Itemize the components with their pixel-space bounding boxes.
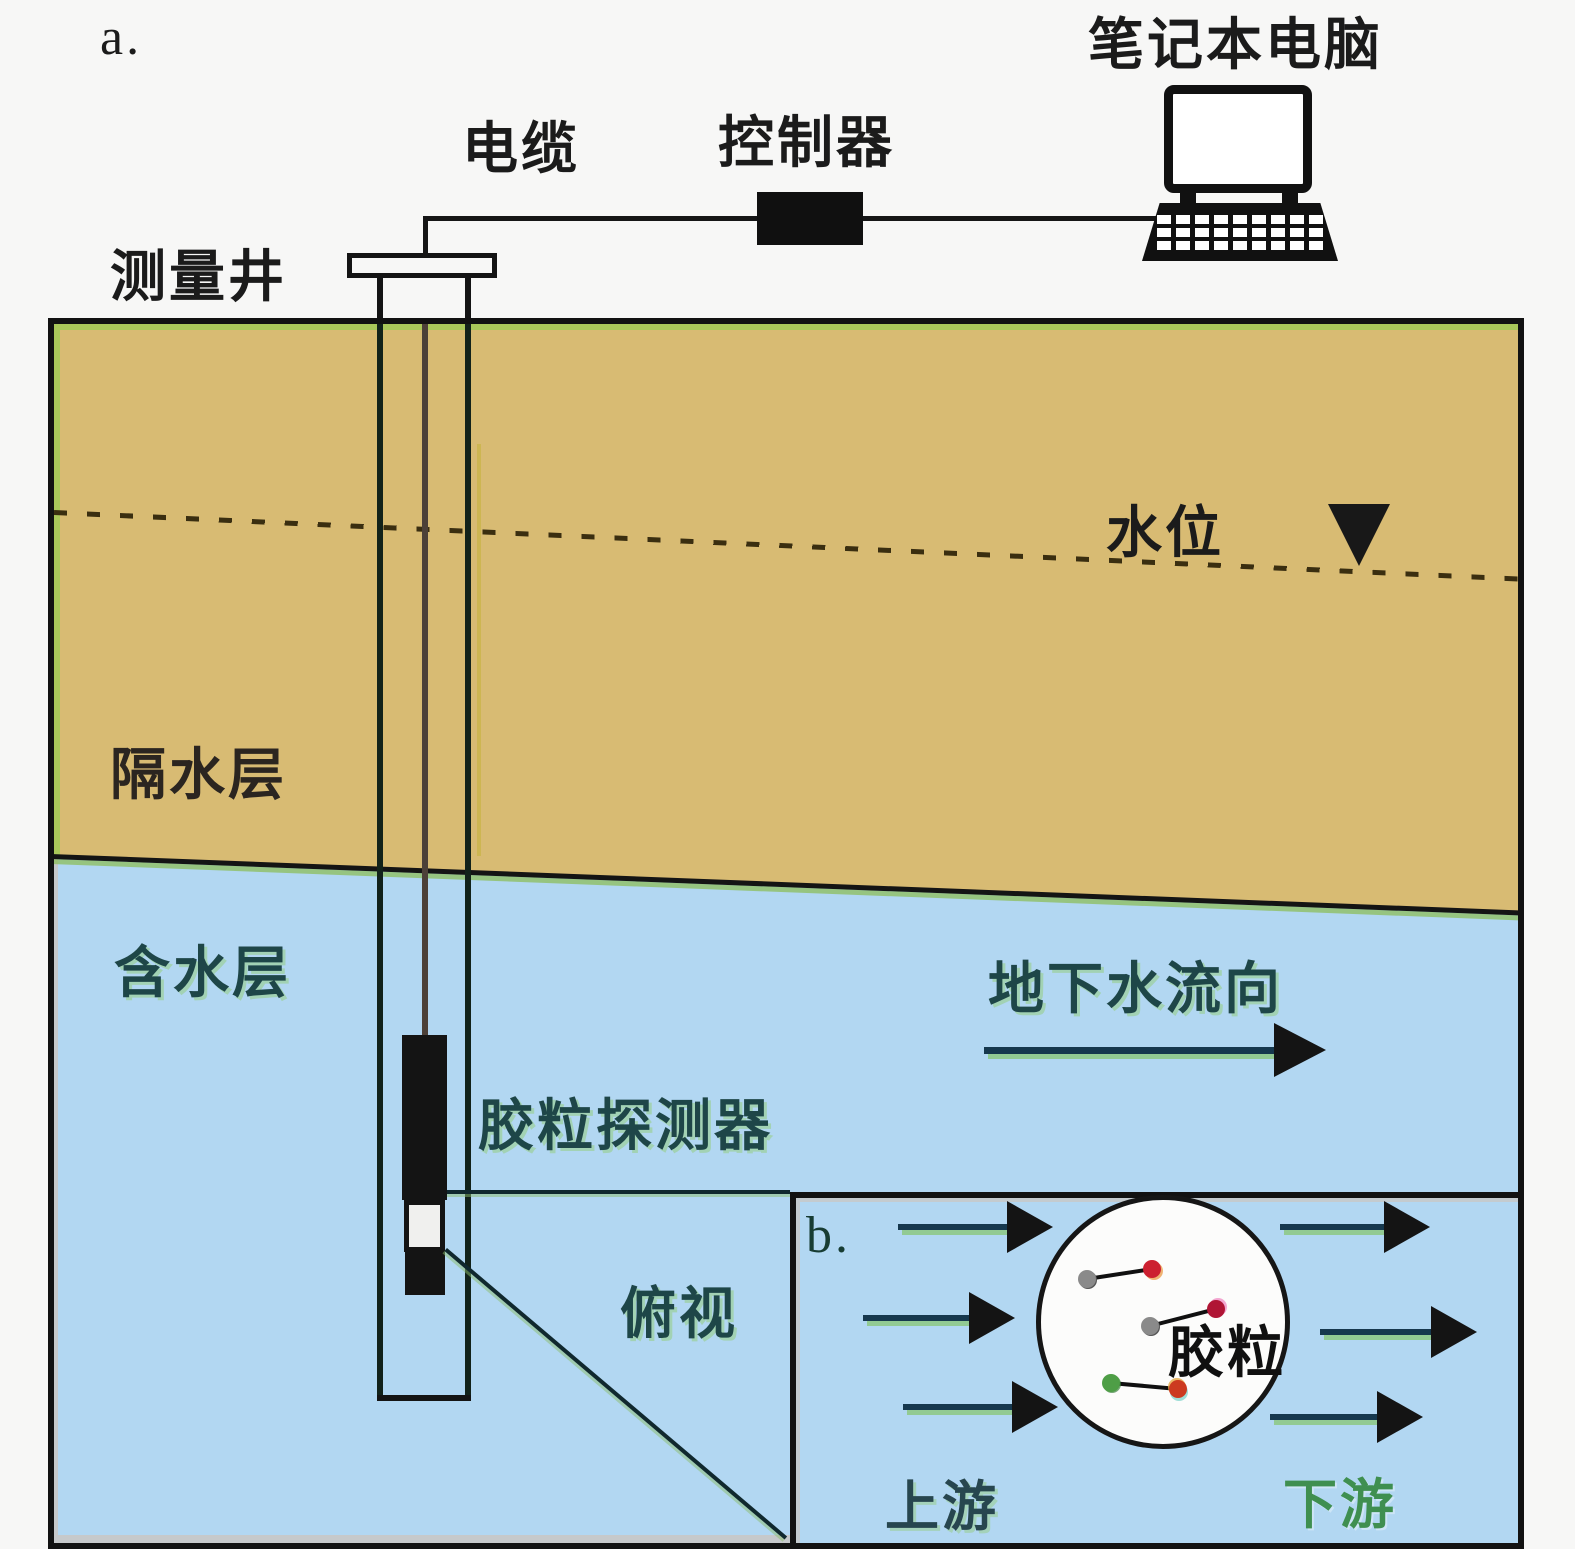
groundwater-flow-label: 地下水流向 — [988, 944, 1283, 1025]
aquifer-label: 含水层 — [114, 928, 291, 1009]
top-view-label: 俯视 — [620, 1269, 738, 1350]
colloid-detector-tip — [405, 1250, 445, 1295]
colloid-detector-body — [402, 1035, 447, 1200]
right-arrow-icon — [1270, 1391, 1423, 1443]
colloid-detector-label: 胶粒探测器 — [478, 1081, 773, 1162]
laptop-keyboard — [1142, 203, 1338, 261]
figure-canvas: a. 测量井 电缆 控制器 笔记本电脑 水位 — [0, 0, 1575, 1549]
colloid-detector-window — [404, 1200, 445, 1252]
controller-label: 控制器 — [718, 98, 895, 179]
cross-section-box: 水位 隔水层 含水层 地下水流向 胶粒探测器 — [48, 318, 1524, 1549]
well-label: 测量井 — [110, 232, 287, 313]
well-casing — [377, 276, 383, 321]
right-arrow-icon — [863, 1292, 1015, 1344]
cable-label: 电缆 — [462, 104, 580, 185]
colloid-particle-start — [1141, 1317, 1159, 1335]
right-arrow-icon — [984, 1024, 1326, 1076]
well-bottom — [377, 1395, 471, 1401]
right-arrow-icon — [1320, 1306, 1477, 1358]
upstream-label: 上游 — [885, 1462, 999, 1541]
green-edge — [54, 324, 1518, 330]
well-casing — [465, 276, 471, 321]
colloid-label: 胶粒 — [1168, 1308, 1286, 1389]
colloid-particle-start — [1078, 1270, 1096, 1288]
well-cap — [347, 253, 497, 278]
panel-b-label: b. — [806, 1206, 851, 1265]
colloid-particle-end — [1143, 1260, 1161, 1278]
laptop-hinge — [1180, 191, 1196, 205]
laptop-label: 笔记本电脑 — [1088, 0, 1383, 81]
right-arrow-icon — [1280, 1201, 1430, 1253]
controller-box-icon — [757, 192, 863, 245]
cable-line — [423, 245, 428, 257]
downhole-cable — [422, 324, 428, 1035]
laptop-screen — [1164, 85, 1312, 193]
green-edge — [54, 324, 60, 856]
panel-a-label: a. — [100, 8, 142, 67]
well-casing — [377, 324, 383, 1398]
panel-b-inset: b. 胶粒 — [790, 1192, 1518, 1543]
colloid-particle-start — [1102, 1374, 1120, 1392]
well-annulus-line — [477, 444, 481, 856]
callout-line — [447, 1190, 790, 1194]
water-table-label: 水位 — [1106, 488, 1224, 569]
right-arrow-icon — [903, 1381, 1058, 1433]
right-arrow-icon — [898, 1201, 1053, 1253]
well-casing — [465, 324, 471, 1398]
inverted-triangle-icon — [1328, 504, 1390, 566]
aquitard-label: 隔水层 — [110, 730, 287, 811]
downstream-label: 下游 — [1283, 1460, 1397, 1539]
laptop-icon — [1142, 85, 1342, 265]
laptop-hinge — [1282, 191, 1298, 205]
